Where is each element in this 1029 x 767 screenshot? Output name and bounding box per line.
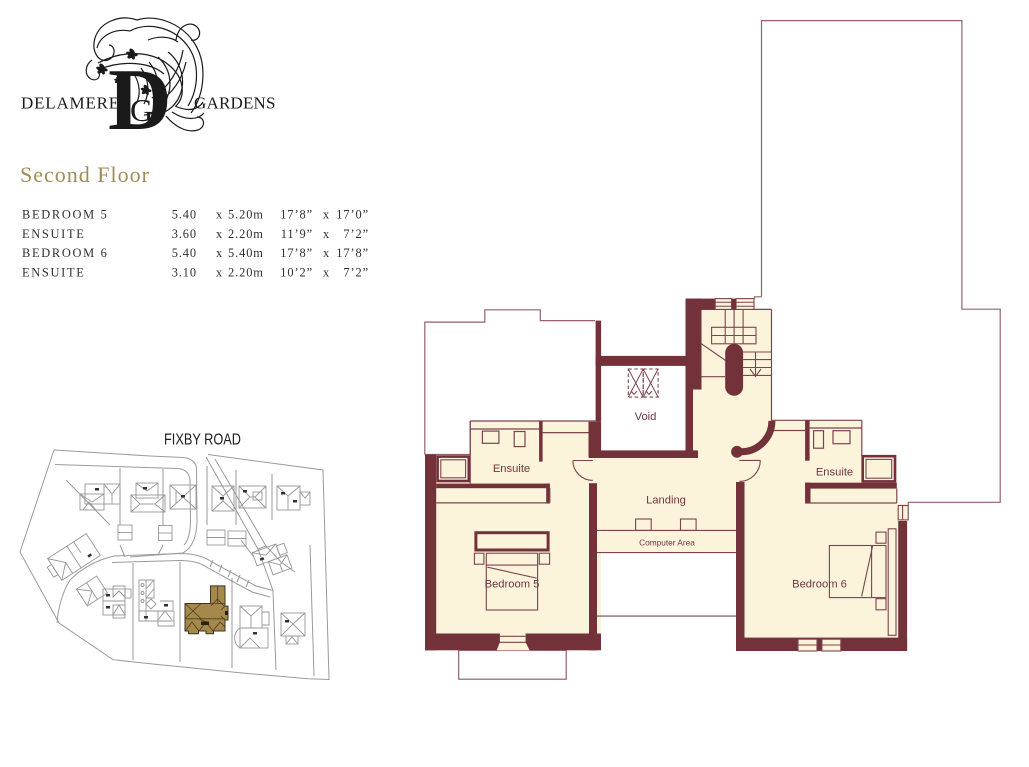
svg-text:ENSUITE: ENSUITE	[22, 227, 86, 241]
svg-text:Void: Void	[635, 411, 657, 423]
svg-text:Ensuite: Ensuite	[493, 463, 530, 475]
svg-text:ENSUITE: ENSUITE	[22, 265, 86, 279]
svg-text:FIXBY ROAD: FIXBY ROAD	[164, 432, 241, 449]
svg-text:Landing: Landing	[646, 494, 686, 506]
svg-text:7’2”: 7’2”	[343, 227, 369, 241]
svg-text:Computer Area: Computer Area	[639, 538, 695, 548]
svg-text:5.40m: 5.40m	[228, 246, 264, 260]
svg-text:x: x	[216, 208, 223, 222]
svg-text:Ensuite: Ensuite	[816, 466, 853, 478]
svg-text:x: x	[323, 208, 330, 222]
svg-text:5.40: 5.40	[172, 246, 197, 260]
svg-text:x: x	[216, 227, 223, 241]
svg-text:17’0”: 17’0”	[336, 208, 369, 222]
svg-text:x: x	[323, 227, 330, 241]
svg-text:x: x	[323, 265, 330, 279]
svg-text:10’2”: 10’2”	[280, 265, 313, 279]
svg-text:DELAMERE: DELAMERE	[21, 94, 120, 113]
svg-text:x: x	[216, 265, 223, 279]
svg-text:2.20m: 2.20m	[228, 227, 264, 241]
svg-text:x: x	[323, 246, 330, 260]
svg-text:5.40: 5.40	[172, 208, 197, 222]
svg-text:Bedroom 5: Bedroom 5	[485, 578, 540, 590]
svg-text:5.20m: 5.20m	[228, 208, 264, 222]
svg-text:17’8”: 17’8”	[280, 208, 313, 222]
svg-text:Bedroom 6: Bedroom 6	[792, 578, 847, 590]
svg-text:7’2”: 7’2”	[343, 265, 369, 279]
svg-text:G: G	[130, 92, 153, 128]
svg-text:Second Floor: Second Floor	[20, 162, 150, 187]
svg-text:3.60: 3.60	[172, 227, 197, 241]
svg-text:17’8”: 17’8”	[280, 246, 313, 260]
svg-text:x: x	[216, 246, 223, 260]
svg-text:BEDROOM 6: BEDROOM 6	[22, 246, 109, 260]
svg-text:17’8”: 17’8”	[336, 246, 369, 260]
svg-text:3.10: 3.10	[172, 265, 197, 279]
svg-text:BEDROOM 5: BEDROOM 5	[22, 208, 109, 222]
svg-text:GARDENS: GARDENS	[194, 94, 276, 113]
svg-text:11’9”: 11’9”	[281, 227, 313, 241]
svg-text:2.20m: 2.20m	[228, 265, 264, 279]
